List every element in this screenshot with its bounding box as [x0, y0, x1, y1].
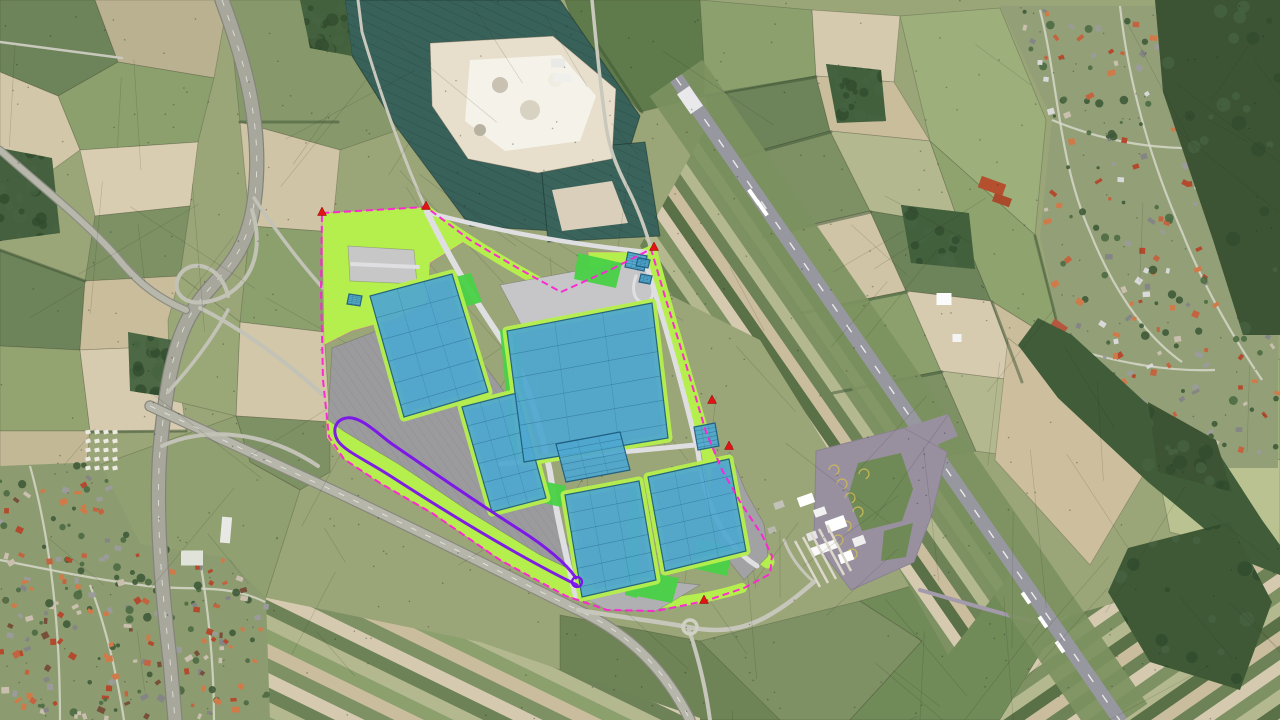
village-tree	[194, 581, 202, 589]
cadastral-dot	[512, 143, 514, 145]
village-house	[1105, 254, 1113, 260]
village-house	[207, 711, 211, 715]
village-tree	[40, 704, 45, 709]
cadastral-dot	[35, 154, 37, 156]
village-house	[1143, 291, 1151, 297]
cadastral-dot	[696, 293, 698, 295]
cadastral-dot	[17, 103, 19, 105]
tree-blob	[48, 163, 53, 168]
cadastral-dot	[758, 508, 760, 510]
cadastral-dot	[1167, 322, 1169, 324]
cadastral-dot	[1159, 653, 1161, 655]
cadastral-dot	[1035, 492, 1037, 494]
allotment-hut	[112, 430, 118, 435]
village-house	[88, 592, 95, 598]
village-tree	[250, 637, 255, 642]
cadastral-dot	[167, 614, 169, 616]
village-tree	[1165, 214, 1174, 223]
village-tree	[1181, 389, 1185, 393]
cadastral-dot	[556, 121, 558, 123]
cadastral-dot	[797, 350, 799, 352]
cadastral-dot	[57, 310, 59, 312]
cadastral-dot	[1085, 110, 1087, 112]
cadastral-dot	[223, 343, 225, 345]
village-tree	[1141, 331, 1150, 340]
cadastral-dot	[918, 480, 920, 482]
village-tree	[103, 698, 107, 702]
village-house	[74, 714, 78, 719]
tree-blob	[1216, 98, 1230, 112]
cadastral-dot	[686, 437, 688, 439]
cadastral-dot	[771, 233, 773, 235]
field-parcel	[80, 142, 198, 216]
cadastral-dot	[1009, 327, 1011, 329]
cadastral-dot	[133, 344, 135, 346]
cadastral-dot	[869, 250, 871, 252]
cadastral-dot	[619, 190, 621, 192]
cadastral-dot	[671, 298, 673, 300]
cadastral-dot	[581, 11, 583, 13]
cadastral-dot	[652, 705, 654, 707]
tree-blob	[1173, 455, 1187, 469]
cadastral-dot	[464, 205, 466, 207]
cadastral-dot	[915, 70, 917, 72]
cadastral-dot	[445, 90, 447, 92]
village-house	[1129, 301, 1134, 306]
cadastral-dot	[171, 236, 173, 238]
village-tree	[99, 701, 103, 705]
tree-blob	[1231, 673, 1242, 684]
village-tree	[232, 589, 240, 597]
village-house	[46, 558, 53, 565]
cadastral-dot	[1129, 119, 1131, 121]
cadastral-dot	[158, 518, 160, 520]
cadastral-dot	[358, 524, 360, 526]
cadastral-dot	[335, 638, 337, 640]
tree-blob	[1232, 92, 1240, 100]
cadastral-dot	[1028, 668, 1030, 670]
village-house	[144, 660, 151, 667]
tree-blob	[1218, 648, 1225, 655]
cadastral-dot	[830, 223, 832, 225]
village-tree	[1229, 396, 1238, 405]
cadastral-dot	[552, 128, 554, 130]
tree-blob	[853, 89, 859, 95]
cadastral-dot	[290, 95, 292, 97]
cadastral-dot	[986, 677, 988, 679]
cadastral-dot	[148, 370, 150, 372]
cadastral-dot	[57, 462, 59, 464]
cadastral-dot	[1187, 59, 1189, 61]
tree-blob	[1165, 587, 1171, 593]
cadastral-dot	[480, 55, 482, 57]
cadastral-dot	[96, 666, 98, 668]
cadastral-dot	[1239, 5, 1241, 7]
cadastral-dot	[575, 634, 577, 636]
cadastral-dot	[253, 317, 255, 319]
cadastral-dot	[191, 199, 193, 201]
cadastral-dot	[144, 416, 146, 418]
tree-blob	[1214, 4, 1227, 17]
cadastral-dot	[223, 665, 225, 667]
cadastral-dot	[373, 566, 375, 568]
cadastral-dot	[378, 606, 380, 608]
cadastral-dot	[944, 432, 946, 434]
cadastral-dot	[943, 378, 945, 380]
cadastral-dot	[212, 413, 214, 415]
cadastral-dot	[98, 508, 100, 510]
village-tree	[1195, 327, 1202, 334]
cadastral-dot	[1008, 437, 1010, 439]
cadastral-dot	[854, 707, 856, 709]
village-tree	[67, 524, 71, 528]
cadastral-dot	[716, 79, 718, 81]
tree-blob	[16, 195, 24, 203]
cadastral-dot	[470, 569, 472, 571]
tree-blob	[1186, 652, 1197, 663]
cadastral-dot	[5, 25, 7, 27]
cadastral-dot	[641, 186, 643, 188]
cadastral-dot	[479, 193, 481, 195]
cadastral-dot	[537, 621, 539, 623]
field-parcel	[0, 346, 90, 431]
landmark-building	[181, 551, 203, 566]
cadastral-dot	[1, 588, 3, 590]
cadastral-dot	[533, 718, 535, 720]
village-house	[124, 691, 128, 697]
cadastral-dot	[62, 141, 64, 143]
tree-blob	[943, 251, 954, 262]
cadastral-dot	[784, 92, 786, 94]
village-tree	[1106, 135, 1110, 139]
cadastral-dot	[1035, 103, 1037, 105]
cadastral-dot	[692, 247, 694, 249]
cadastral-dot	[1145, 53, 1147, 55]
cadastral-dot	[365, 637, 367, 639]
village-house	[105, 538, 110, 542]
cadastral-dot	[0, 240, 2, 242]
cadastral-dot	[275, 309, 277, 311]
cadastral-dot	[1220, 106, 1222, 108]
village-house	[219, 646, 224, 650]
village-tree	[84, 486, 91, 493]
village-tree	[63, 620, 71, 628]
cadastral-dot	[1236, 371, 1238, 373]
cadastral-dot	[1182, 471, 1184, 473]
cadastral-dot	[717, 449, 719, 451]
cadastral-dot	[335, 203, 337, 205]
cadastral-dot	[134, 114, 136, 116]
tree-blob	[1200, 136, 1209, 145]
cadastral-dot	[183, 87, 185, 89]
quarry-blob	[520, 100, 540, 120]
cadastral-dot	[657, 123, 659, 125]
cadastral-dot	[104, 30, 106, 32]
cadastral-dot	[1069, 509, 1071, 511]
cadastral-dot	[818, 83, 820, 85]
village-tree	[184, 602, 188, 606]
tree-blob	[848, 104, 854, 110]
cadastral-dot	[50, 536, 52, 538]
cadastral-dot	[1079, 260, 1081, 262]
village-house	[1113, 353, 1118, 359]
cadastral-dot	[256, 479, 258, 481]
cadastral-dot	[704, 303, 706, 305]
village-house	[74, 491, 81, 494]
cadastral-dot	[172, 292, 174, 294]
cadastral-dot	[609, 100, 611, 102]
cadastral-dot	[232, 573, 234, 575]
cadastral-dot	[774, 691, 776, 693]
cadastral-dot	[779, 707, 781, 709]
cadastral-dot	[863, 305, 865, 307]
cadastral-dot	[1024, 224, 1026, 226]
cadastral-dot	[1144, 96, 1146, 98]
village-tree	[147, 671, 153, 677]
cadastral-dot	[146, 681, 148, 683]
cadastral-dot	[566, 633, 568, 635]
village-house	[1108, 197, 1111, 200]
tree-blob	[1273, 267, 1278, 272]
cadastral-dot	[574, 142, 576, 144]
cadastral-dot	[908, 438, 910, 440]
cadastral-dot	[351, 478, 353, 480]
cadastral-dot	[1123, 246, 1125, 248]
village-tree	[114, 575, 119, 580]
village-tree	[16, 588, 21, 593]
cadastral-dot	[1063, 58, 1065, 60]
tree-blob	[868, 71, 876, 79]
cadastral-dot	[983, 301, 985, 303]
cadastral-dot	[525, 674, 527, 676]
village-house	[1238, 385, 1243, 389]
cadastral-dot	[872, 286, 874, 288]
village-tree	[229, 630, 236, 637]
cadastral-dot	[885, 325, 887, 327]
cadastral-dot	[1238, 542, 1240, 544]
cadastral-dot	[238, 240, 240, 242]
landmark-building	[551, 59, 565, 68]
cadastral-dot	[273, 610, 275, 612]
cadastral-dot	[945, 386, 947, 388]
village-tree	[1139, 323, 1144, 328]
village-tree	[1273, 444, 1279, 450]
village-house	[146, 635, 150, 641]
cadastral-dot	[673, 270, 675, 272]
cadastral-dot	[177, 537, 179, 539]
quarry-blob	[492, 77, 508, 93]
cadastral-dot	[207, 101, 209, 103]
cadastral-dot	[691, 109, 693, 111]
village-tree	[245, 658, 250, 663]
village-tree	[1120, 96, 1129, 105]
cadastral-dot	[269, 33, 271, 35]
cadastral-dot	[1135, 589, 1137, 591]
cadastral-dot	[697, 19, 699, 21]
cadastral-dot	[841, 209, 843, 211]
cadastral-dot	[570, 34, 572, 36]
village-house	[62, 579, 67, 584]
cadastral-dot	[1062, 244, 1064, 246]
cadastral-dot	[1, 384, 3, 386]
cadastral-dot	[370, 638, 372, 640]
cadastral-dot	[803, 229, 805, 231]
cadastral-dot	[92, 587, 94, 589]
tree-blob	[1195, 462, 1206, 473]
village-tree	[1174, 343, 1179, 348]
cadastral-dot	[1073, 295, 1075, 297]
cadastral-dot	[368, 156, 370, 158]
cadastral-dot	[179, 540, 181, 542]
cadastral-dot	[211, 713, 213, 715]
cadastral-dot	[154, 433, 156, 435]
village-house	[129, 628, 133, 631]
cadastral-dot	[925, 119, 927, 121]
cadastral-dot	[579, 168, 581, 170]
cadastral-dot	[521, 707, 523, 709]
cadastral-dot	[998, 59, 1000, 61]
cadastral-dot	[686, 711, 688, 713]
tree-blob	[21, 156, 27, 162]
village-house	[81, 553, 87, 558]
cadastral-dot	[66, 471, 68, 473]
village-tree	[1079, 208, 1086, 215]
village-tree	[209, 686, 216, 693]
cadastral-dot	[263, 459, 265, 461]
village-tree	[1139, 122, 1143, 126]
cadastral-dot	[367, 663, 369, 665]
cadastral-dot	[979, 139, 981, 141]
village-tree	[1101, 233, 1109, 241]
cadastral-dot	[1123, 668, 1125, 670]
cadastral-dot	[984, 686, 986, 688]
cadastral-dot	[801, 268, 803, 270]
village-tree	[1114, 235, 1120, 241]
tree-blob	[31, 165, 38, 172]
tree-blob	[1142, 458, 1155, 471]
village-tree	[3, 490, 10, 497]
cadastral-dot	[383, 550, 385, 552]
cadastral-dot	[302, 433, 304, 435]
tree-blob	[1162, 57, 1174, 69]
village-tree	[72, 506, 76, 510]
cadastral-dot	[130, 699, 132, 701]
cadastral-dot	[941, 313, 943, 315]
cadastral-dot	[925, 495, 927, 497]
cadastral-dot	[894, 375, 896, 377]
tree-blob	[133, 365, 145, 377]
tree-blob	[1208, 615, 1216, 623]
cadastral-dot	[723, 52, 725, 54]
cadastral-dot	[1171, 240, 1173, 242]
cadastral-dot	[916, 633, 918, 635]
village-tree	[1122, 201, 1126, 205]
village-house	[1252, 379, 1258, 383]
cadastral-dot	[1216, 57, 1218, 59]
airport-building	[937, 293, 952, 305]
cadastral-dot	[800, 154, 802, 156]
cadastral-dot	[6, 665, 8, 667]
cadastral-dot	[829, 249, 831, 251]
village-tree	[120, 537, 126, 543]
cadastral-dot	[993, 638, 995, 640]
village-tree	[73, 462, 81, 470]
map-viewport[interactable]	[0, 0, 1280, 720]
cadastral-dot	[1022, 293, 1024, 295]
cadastral-dot	[208, 512, 210, 514]
village-house	[1132, 316, 1137, 321]
aerial-imagery	[0, 0, 1280, 720]
village-house	[218, 658, 222, 664]
village-tree	[1066, 165, 1070, 169]
cadastral-dot	[628, 37, 630, 39]
cadastral-dot	[323, 426, 325, 428]
cadastral-dot	[823, 537, 825, 539]
cadastral-dot	[1008, 509, 1010, 511]
village-house	[0, 649, 4, 655]
cadastral-dot	[18, 682, 20, 684]
village-tree	[1142, 39, 1148, 45]
village-house	[124, 624, 132, 628]
cadastral-dot	[1138, 117, 1140, 119]
cadastral-dot	[67, 492, 69, 494]
cadastral-dot	[720, 61, 722, 63]
village-house	[1139, 248, 1145, 254]
cadastral-dot	[945, 535, 947, 537]
cadastral-dot	[737, 176, 739, 178]
cadastral-dot	[934, 575, 936, 577]
cadastral-dot	[204, 281, 206, 283]
cadastral-dot	[237, 173, 239, 175]
cadastral-dot	[198, 266, 200, 268]
cadastral-dot	[1076, 462, 1078, 464]
cadastral-dot	[592, 159, 594, 161]
cadastral-dot	[746, 255, 748, 257]
cadastral-dot	[916, 376, 918, 378]
cadastral-dot	[282, 105, 284, 107]
cadastral-dot	[838, 64, 840, 66]
tree-blob	[1237, 1, 1249, 13]
village-tree	[1053, 115, 1056, 118]
cadastral-dot	[528, 174, 530, 176]
village-tree	[0, 522, 7, 529]
village-house	[1157, 327, 1160, 332]
cadastral-dot	[1073, 70, 1075, 72]
cadastral-dot	[115, 312, 117, 314]
cadastral-dot	[1004, 634, 1006, 636]
village-house	[254, 615, 261, 621]
village-house	[263, 603, 269, 609]
tree-blob	[1243, 105, 1251, 113]
cadastral-dot	[969, 188, 971, 190]
cadastral-dot	[1103, 122, 1105, 124]
village-tree	[1204, 300, 1208, 304]
village-house	[191, 703, 195, 707]
tree-blob	[16, 232, 21, 237]
cadastral-dot	[93, 262, 95, 264]
village-tree	[126, 615, 134, 623]
cadastral-dot	[113, 127, 115, 129]
tree-blob	[1208, 114, 1213, 119]
cadastral-dot	[1189, 116, 1191, 118]
tree-blob	[1204, 476, 1214, 486]
cadastral-dot	[7, 179, 9, 181]
cadastral-dot	[1010, 461, 1012, 463]
tree-blob	[337, 4, 346, 13]
cadastral-dot	[1135, 93, 1137, 95]
village-house	[193, 607, 200, 613]
cadastral-dot	[1005, 660, 1007, 662]
